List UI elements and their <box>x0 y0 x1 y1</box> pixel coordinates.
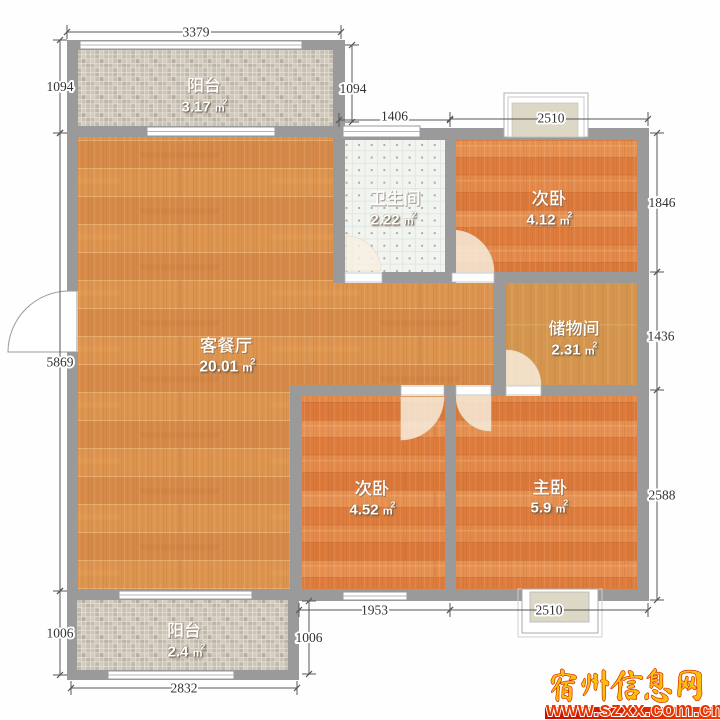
svg-text:2: 2 <box>593 340 598 350</box>
svg-text:2.4: 2.4 <box>168 643 190 660</box>
svg-text:2510: 2510 <box>538 111 565 126</box>
svg-text:2: 2 <box>391 500 396 510</box>
svg-text:2: 2 <box>250 356 255 366</box>
svg-text:4.12: 4.12 <box>526 211 555 228</box>
svg-text:2: 2 <box>200 642 205 652</box>
svg-text:1406: 1406 <box>381 109 408 124</box>
svg-text:2: 2 <box>568 210 573 220</box>
svg-text:4.52: 4.52 <box>349 501 378 518</box>
svg-text:1006: 1006 <box>296 630 323 645</box>
svg-text:2832: 2832 <box>171 681 198 696</box>
svg-text:1006: 1006 <box>47 626 74 641</box>
svg-text:3.17: 3.17 <box>181 98 210 115</box>
svg-text:5.9: 5.9 <box>531 499 552 516</box>
svg-text:1436: 1436 <box>648 329 675 344</box>
svg-text:2.22: 2.22 <box>370 211 399 228</box>
svg-text:2: 2 <box>563 498 568 508</box>
svg-text:www.szxx.com.cn: www.szxx.com.cn <box>545 699 720 720</box>
svg-text:2.31: 2.31 <box>551 341 580 358</box>
svg-text:3379: 3379 <box>183 25 210 40</box>
svg-text:20.01: 20.01 <box>199 359 238 376</box>
svg-text:2588: 2588 <box>649 488 676 503</box>
svg-text:1953: 1953 <box>361 603 388 618</box>
svg-text:2510: 2510 <box>536 603 563 618</box>
svg-text:1094: 1094 <box>47 79 74 94</box>
svg-text:1094: 1094 <box>340 81 367 96</box>
svg-text:5869: 5869 <box>47 355 74 370</box>
svg-text:2: 2 <box>412 210 417 220</box>
svg-text:1846: 1846 <box>649 195 676 210</box>
svg-text:2: 2 <box>223 97 228 107</box>
